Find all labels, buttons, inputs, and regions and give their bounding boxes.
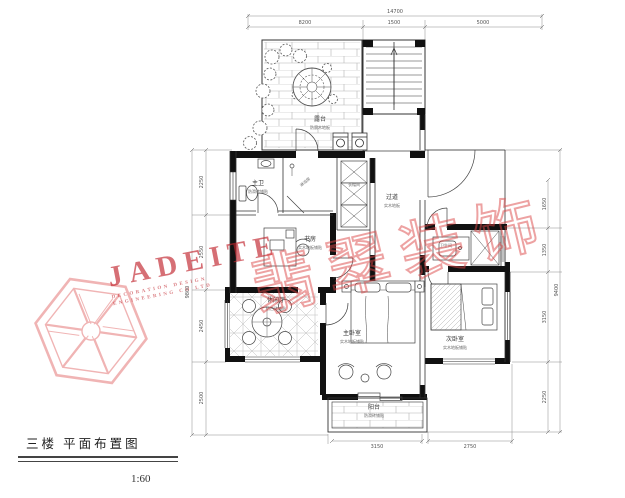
room-label-cloakroom: 衣帽间 [348,181,360,187]
room-note-master-bedroom: 实木地板铺贴 [340,338,364,344]
hall-door [428,150,475,197]
bathroom-door [258,193,278,213]
dim-left-c: 2450 [199,320,205,333]
room-label-balcony: 阳台 [368,403,380,411]
room-label-terrace: 露台 [314,115,326,123]
bath-window [230,172,236,200]
room-label-study: 书房 [304,235,316,243]
bedroom2-right-window [505,292,510,340]
balcony-slider-b [380,397,402,401]
balcony-slider-a [358,393,380,397]
dim-top-b: 1500 [388,20,401,26]
title-block: 三楼 平面布置图 [18,433,178,462]
title-rule-thick [18,456,178,458]
leisure-left-window [225,300,230,348]
room-note-leisure: 仿古砖铺贴 [266,305,286,311]
room-note-master-bath: 防滑砖铺贴 [248,188,268,194]
dim-right-a: 1650 [542,198,548,211]
garden-ornament [293,68,331,106]
dim-right-total: 9400 [554,284,560,297]
bath2-window [501,236,505,262]
room-label-master-bath: 主卫 [252,179,264,187]
dim-bottom-b: 2750 [464,444,477,450]
room-note-corridor: 实木地板 [384,202,400,208]
room-label-second-bedroom: 次卧室 [446,335,464,343]
dim-bottom-a: 3150 [371,444,384,450]
room-label-master-bedroom: 主卧室 [343,329,361,337]
second-bedroom-furniture [431,284,497,330]
floorplan-drawing: 14700 8200 1500 5000 9800 2250 2550 2450… [0,0,625,498]
dim-left-d: 2500 [199,392,205,405]
leisure-bottom-window [245,357,300,362]
drawing-title: 三楼 平面布置图 [18,433,178,452]
room-labels: 露台 防腐木地板 淋浴房 主卫 防滑砖铺贴 衣帽间 过道 实木地板 书房 实木地… [248,115,467,418]
floorplan-canvas: 14700 8200 1500 5000 9800 2250 2550 2450… [0,0,625,498]
shower-door [287,196,304,213]
bedroom2-bottom-window [443,359,495,364]
dim-left-total: 9800 [185,286,191,299]
scale-label: 1:60 [131,473,151,485]
master-door [326,303,348,325]
dim-left-a: 2250 [199,176,205,189]
room-note-study: 实木地板铺贴 [298,244,322,250]
room-label-leisure: 休闲厅 [267,296,285,304]
room-label-bathroom2: 卫生间 [440,242,452,248]
title-rule-thin [18,461,178,462]
stairs [363,40,425,151]
dim-left-b: 2550 [199,246,205,259]
dim-right-b: 1350 [542,244,548,257]
dim-right-c: 3150 [542,311,548,324]
dim-right-d: 2250 [542,391,548,404]
dim-top-a: 8200 [299,20,312,26]
study-door [333,258,353,278]
room-label-corridor: 过道 [386,193,398,201]
room-note-second-bedroom: 实木地板铺贴 [443,344,467,350]
room-note-terrace: 防腐木地板 [310,124,330,130]
dim-top-total: 14700 [387,9,403,15]
bath2-counter [433,237,469,260]
room-note-balcony: 防滑砖铺贴 [364,412,384,418]
dim-top-c: 5000 [477,20,490,26]
room-label-shower: 淋浴房 [298,175,311,187]
